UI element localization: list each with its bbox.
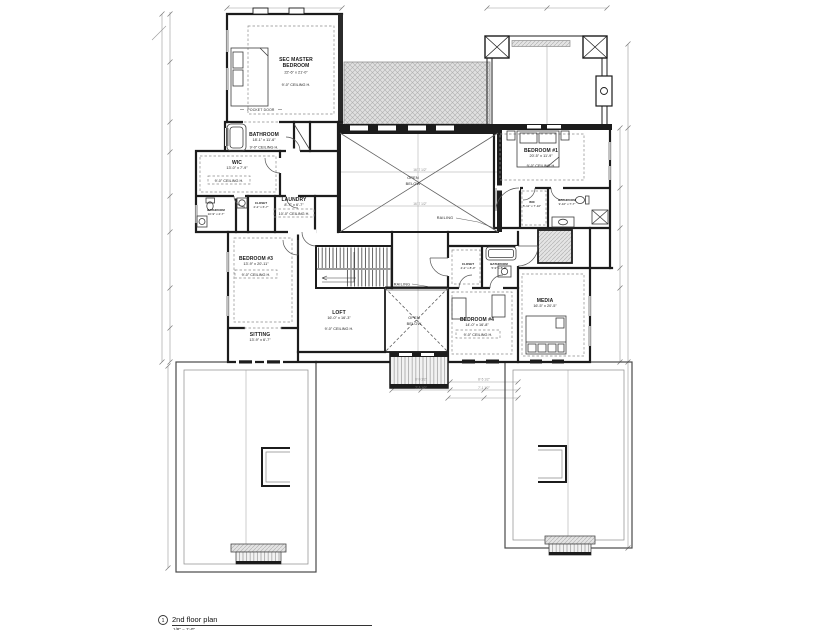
deck-fireplace — [596, 76, 612, 106]
floor-plan-drawing: SEC MASTER BEDROOM 22'-6" x 21'-0" 9'-0"… — [0, 0, 840, 630]
label-bedroom1-dims: 20'-5" x 11'-9" — [529, 154, 553, 158]
label-bedroom4-closet-dims: 4'-2" x 8'-0" — [460, 266, 475, 270]
label-loft-ceiling: 9'-0" CEILING H. — [325, 327, 354, 331]
label-open-below1-line2: BELOW — [406, 182, 421, 186]
label-bedroom3-dims: 13'-9" x 20'-11" — [243, 262, 269, 266]
dim-bottom-2: 8'-5 1/2" — [478, 378, 490, 382]
label-master-bath-ceiling: 9'-0" CEILING H. — [250, 146, 279, 150]
bed-master — [231, 48, 268, 106]
deck — [485, 36, 612, 124]
left-wing-vent — [231, 544, 286, 552]
label-sec-master-ceiling: 9'-0" CEILING H. — [282, 83, 311, 87]
label-open-below2-line2: BELOW — [407, 322, 422, 326]
drawing-title: 2nd floor plan — [172, 615, 217, 624]
label-bedroom4-bath-dims: 5'-9" x 8'-9" — [491, 266, 506, 270]
roof-hatch-right — [538, 230, 572, 263]
label-open-below1-line1: OPEN — [407, 176, 419, 180]
sheet-number: 1 — [162, 618, 165, 624]
label-closet-dims: 2'-2" x 6'-7" — [253, 205, 268, 209]
dresser-bedroom4-left — [452, 298, 466, 319]
right-wing-vent — [545, 536, 595, 544]
label-bedroom3-ceiling: 9'-0" CEILING H. — [242, 273, 271, 277]
label-bedroom1-wic-dims: 5'-11" x 7'-10" — [523, 204, 541, 208]
label-hall-bath-dims: 10'-9" x 4'-7" — [208, 212, 225, 216]
label-bedroom1-ceiling: 9'-0" CEILING H. — [527, 164, 556, 168]
right-wing-outline — [505, 362, 632, 548]
title-block: 1 2nd floor plan 1/8" = 1'-0" — [159, 615, 373, 630]
bathtub-bedroom4 — [486, 247, 516, 260]
label-bedroom1-bath-dims: 9'-10" x 7'-7" — [559, 202, 576, 206]
dim-bottom-1: 8'-9 1/2" — [415, 378, 427, 382]
label-bedroom4-dims: 14'-0" x 16'-8" — [465, 323, 489, 327]
staircase — [317, 248, 391, 287]
dim-open-below-1: 16'-7 1/2" — [413, 168, 426, 172]
label-railing-2: RAILING — [394, 283, 411, 287]
label-sec-master-dims: 22'-6" x 21'-0" — [284, 71, 308, 75]
sink-nook — [237, 198, 247, 208]
label-loft-dims: 16'-0" x 16'-3" — [327, 316, 351, 320]
label-master-bath-dims: 18'-1" x 11'-6" — [252, 138, 276, 142]
label-laundry-ceiling: 10'-0" CEILING H. — [279, 212, 310, 216]
sink-hall — [197, 216, 207, 227]
label-railing-1: RAILING — [437, 216, 454, 220]
vanity-bedroom1-bath — [552, 217, 574, 227]
dim-bottom-4: 7'-1 1/2" — [478, 386, 490, 390]
label-bedroom4-ceiling: 9'-0" CEILING H. — [464, 333, 493, 337]
label-pocket-door: POCKET DOOR — [247, 108, 275, 112]
toilet-bedroom1-bath — [576, 196, 590, 204]
sofa-media — [526, 316, 566, 354]
dim-open-below-2: 16'-7 1/2" — [413, 202, 426, 206]
deck-beam-hatch — [512, 41, 570, 47]
label-open-below2-line1: OPEN — [408, 316, 420, 320]
label-wic-dims: 13'-0" x 7'-9" — [226, 166, 248, 170]
shower-master — [294, 124, 310, 150]
label-media-dims: 16'-5" x 20'-5" — [533, 304, 557, 308]
label-sitting-dims: 13'-9" x 6'-7" — [249, 338, 271, 342]
water-heater — [592, 210, 608, 224]
label-laundry-dims: 8'-7" x 6'-7" — [284, 203, 304, 207]
label-wic-ceiling: 9'-0" CEILING H. — [215, 179, 244, 183]
dresser-bedroom4-right — [492, 295, 505, 317]
dim-bottom-3: 7'-3 1/2" — [415, 386, 427, 390]
lower-wings — [176, 362, 632, 572]
label-sec-master-name2: BEDROOM — [283, 63, 310, 69]
floor-plan-page: SEC MASTER BEDROOM 22'-6" x 21'-0" 9'-0"… — [0, 0, 840, 630]
roof-hatch-top-center — [344, 62, 490, 124]
